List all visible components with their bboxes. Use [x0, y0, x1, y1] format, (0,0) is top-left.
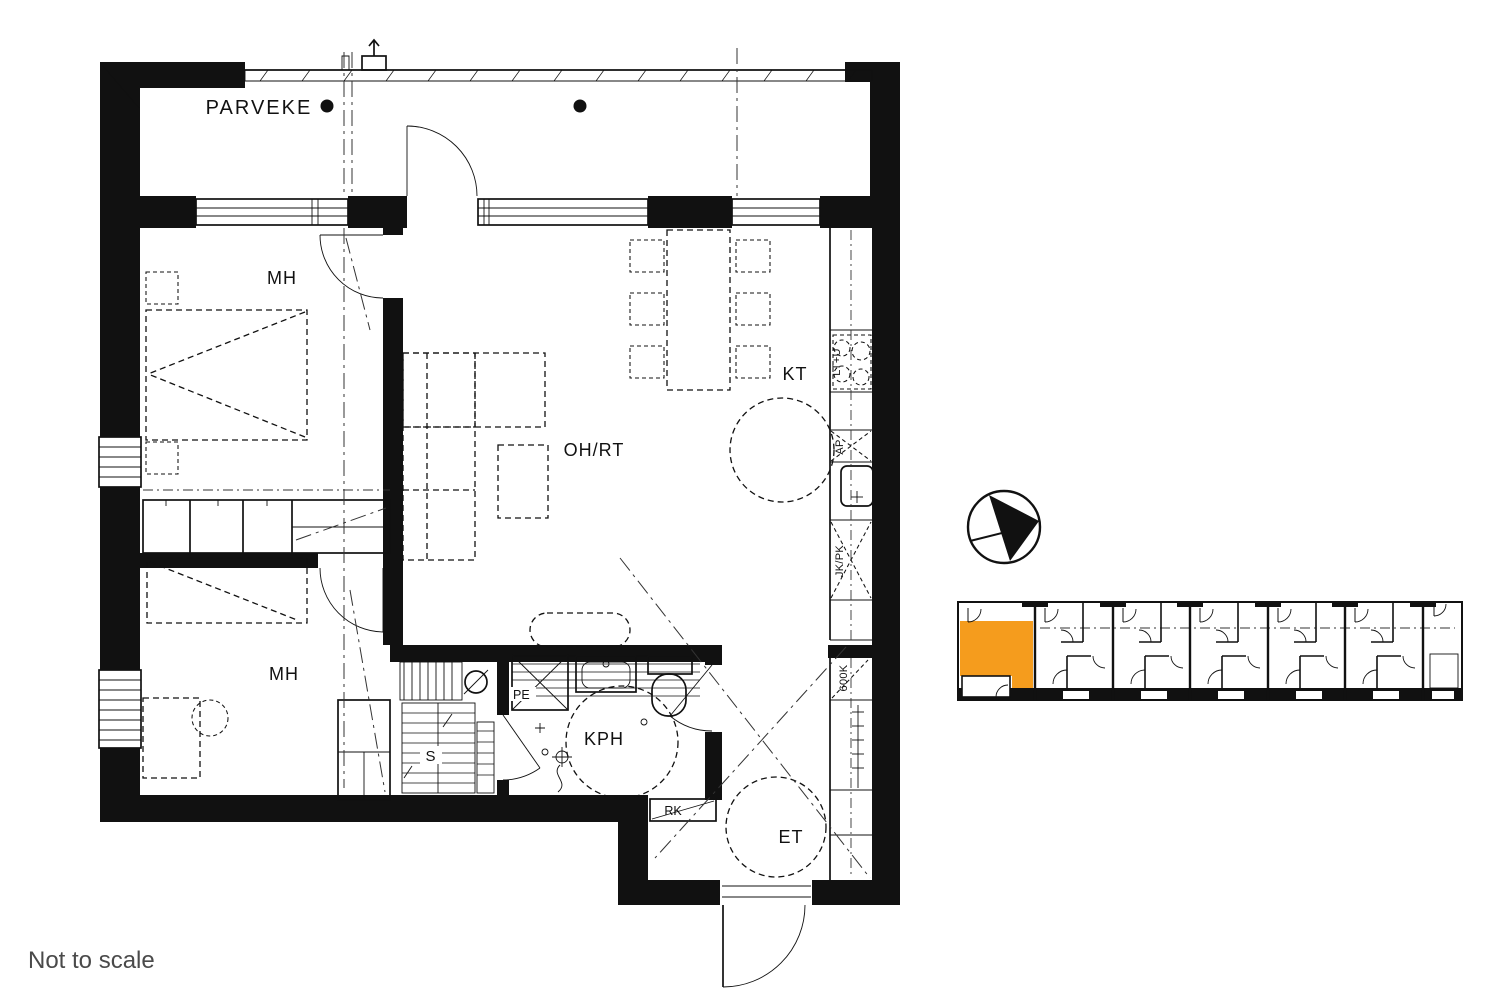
fixture-label-fridge-freezer: JK/PK	[834, 545, 846, 577]
chair	[630, 240, 664, 272]
room-label-balcony: PARVEKE	[206, 97, 313, 119]
chair	[736, 346, 770, 378]
fixture-label-distribution-board: RK	[664, 804, 682, 818]
floor-plan-image: PARVEKE MH MH OH/RT KT KPH S ET LT+U AP …	[0, 0, 1500, 1000]
sofa	[403, 353, 545, 560]
floor-drain-icon	[641, 719, 647, 725]
ceiling-bulkhead	[530, 613, 630, 647]
disclaimer-text: Not to scale	[28, 947, 155, 974]
sauna-door	[503, 715, 540, 780]
window	[196, 199, 348, 225]
room-label-living-room: OH/RT	[564, 440, 625, 460]
chair	[736, 293, 770, 325]
closet	[338, 700, 390, 800]
fixture-labels: LT+U AP JK/PK 600K PE RK	[510, 348, 850, 818]
fixture-label-dishwasher: AP	[834, 439, 846, 454]
kitchen-fixtures	[830, 228, 873, 640]
balcony-door	[407, 126, 477, 196]
walls	[100, 62, 900, 905]
room-label-sauna: S	[425, 748, 436, 765]
roof-drain-icon	[342, 40, 386, 70]
site-plan	[958, 602, 1462, 700]
floor-plan-page: PARVEKE MH MH OH/RT KT KPH S ET LT+U AP …	[0, 0, 1500, 1000]
balcony-column-dot	[321, 100, 334, 113]
turning-circle	[726, 777, 826, 877]
chair	[192, 700, 228, 736]
room-label-bedroom-top: MH	[267, 268, 297, 288]
wardrobes	[143, 500, 390, 553]
coat-rack-icon	[852, 705, 864, 788]
balcony-railing	[245, 40, 872, 113]
room-label-kitchen: KT	[782, 364, 807, 384]
bedroom-top-furniture	[146, 272, 307, 474]
window	[99, 437, 141, 487]
toilet-icon	[648, 656, 692, 716]
coffee-table	[498, 445, 548, 518]
north-arrow-icon	[968, 491, 1040, 563]
window	[99, 670, 141, 748]
sink-icon	[841, 466, 873, 506]
nightstand	[146, 272, 178, 304]
distribution-board	[650, 799, 716, 821]
bedroom-bottom-furniture	[143, 558, 390, 800]
fixture-label-stove: LT+U	[831, 348, 843, 376]
room-label-bedroom-bottom: MH	[269, 664, 299, 684]
chair	[630, 293, 664, 325]
fixture-label-washing-machine: PE	[513, 688, 530, 702]
room-label-entry: ET	[778, 827, 803, 847]
room-label-bathroom: KPH	[584, 729, 624, 749]
window	[478, 199, 648, 225]
dining-table	[667, 230, 730, 390]
entry-door	[722, 886, 811, 987]
bed	[146, 310, 307, 440]
sauna-fixtures	[400, 662, 494, 793]
living-room-furniture	[403, 353, 630, 647]
bedroom-top-door	[320, 235, 383, 298]
desk	[143, 698, 200, 778]
balcony-column-dot	[574, 100, 587, 113]
turning-circle	[730, 398, 834, 502]
chair	[736, 240, 770, 272]
window	[732, 199, 820, 225]
section-lines	[143, 48, 870, 878]
chair	[630, 346, 664, 378]
nightstand	[146, 442, 178, 474]
bathroom-fixtures	[512, 655, 700, 798]
fixture-label-tall-cabinet: 600K	[838, 664, 850, 691]
